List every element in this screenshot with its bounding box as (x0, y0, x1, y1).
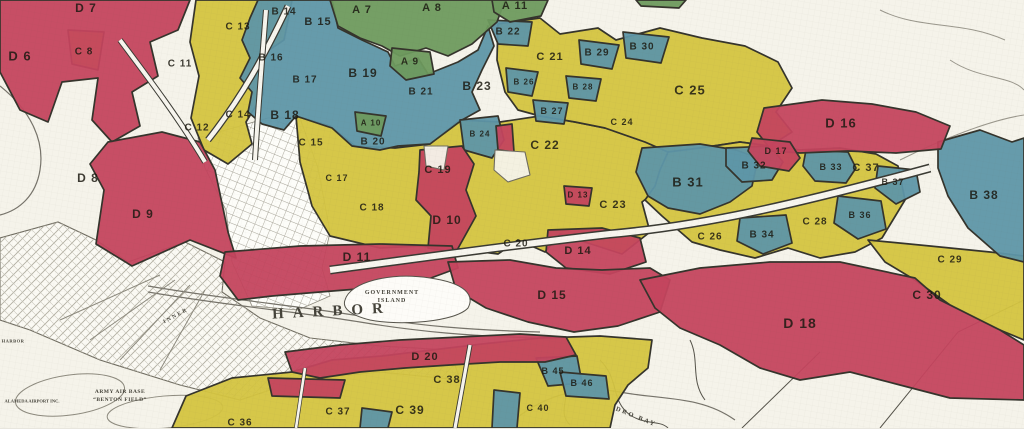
holc-security-map: A 7A 8A 9A 10A 11B 14B 15B 16B 17B 18B 1… (0, 0, 1024, 428)
street-texture-overlay (0, 0, 1024, 428)
map-canvas (0, 0, 1024, 428)
